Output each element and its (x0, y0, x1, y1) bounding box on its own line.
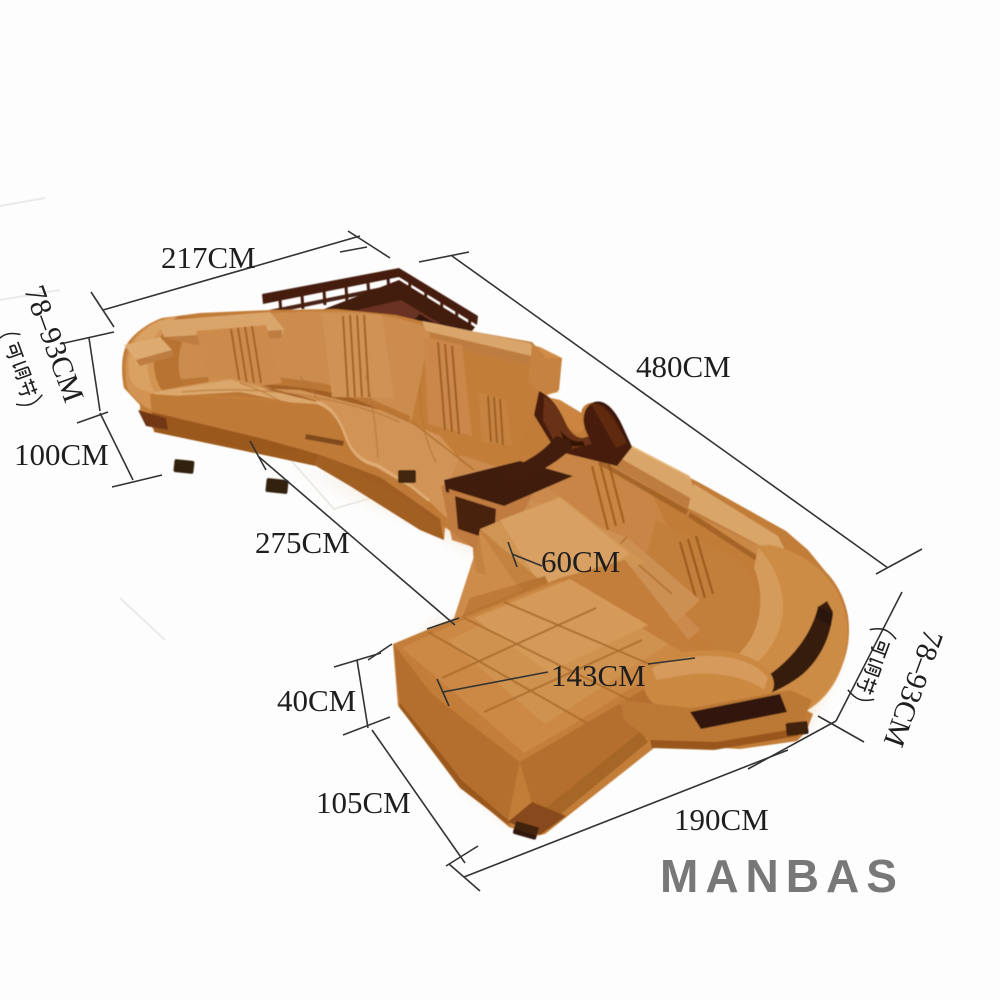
svg-text:217CM: 217CM (161, 240, 256, 275)
svg-text:480CM: 480CM (636, 349, 731, 384)
svg-text:MANBAS: MANBAS (660, 850, 904, 902)
svg-text:40CM: 40CM (277, 683, 356, 718)
svg-text:100CM: 100CM (14, 437, 109, 472)
svg-text:105CM: 105CM (316, 785, 411, 820)
svg-text:60CM: 60CM (541, 544, 620, 579)
svg-text:190CM: 190CM (674, 802, 769, 837)
svg-text:275CM: 275CM (255, 525, 350, 560)
svg-text:143CM: 143CM (551, 658, 646, 693)
